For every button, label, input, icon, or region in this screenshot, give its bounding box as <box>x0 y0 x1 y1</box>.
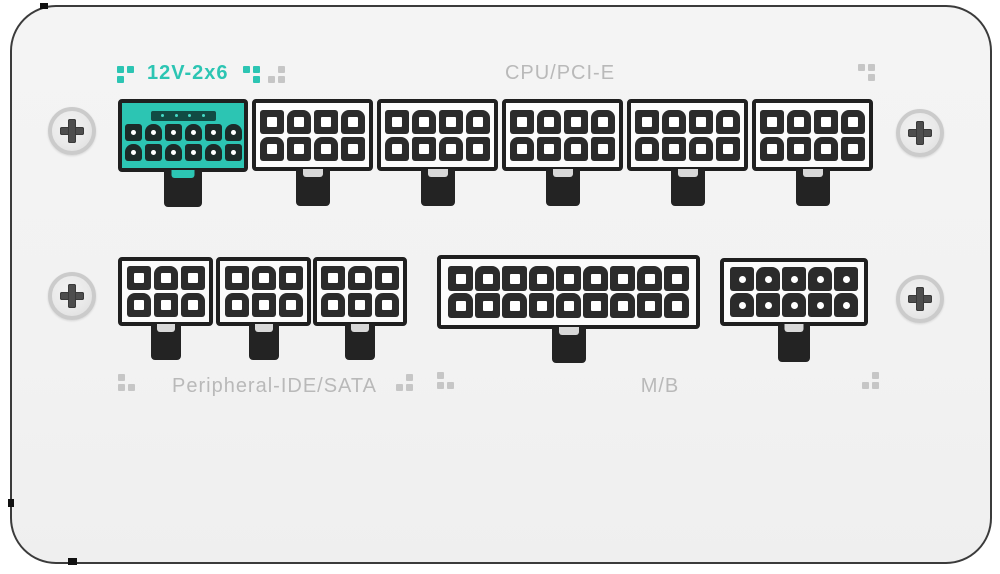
pin-hole <box>517 117 527 127</box>
clip-tab-notch <box>157 324 175 332</box>
pin-hole <box>517 144 527 154</box>
motif-square <box>128 384 135 391</box>
pin-socket <box>348 266 372 290</box>
pin-socket <box>637 293 662 318</box>
pin-socket <box>466 110 490 134</box>
pin-socket <box>502 293 527 318</box>
pin-grid <box>260 110 365 161</box>
pin-socket <box>662 137 686 161</box>
pin-socket <box>127 266 151 290</box>
clip-tab-notch <box>351 324 369 332</box>
pin-hole <box>483 274 493 284</box>
connector-clip-tab <box>671 169 705 206</box>
pin-hole <box>131 130 136 135</box>
pin-socket <box>537 137 561 161</box>
motif-square <box>268 76 275 83</box>
pin-socket <box>610 266 635 291</box>
pin-socket <box>127 293 151 317</box>
pin-socket <box>412 137 436 161</box>
motif-square <box>278 66 285 73</box>
pin-socket <box>591 110 615 134</box>
pin-hole <box>473 117 483 127</box>
pin-socket <box>475 266 500 291</box>
pin-hole <box>767 144 777 154</box>
pin-socket <box>756 267 780 291</box>
decorative-dot-motif <box>858 64 875 81</box>
phillips-cross-vertical <box>68 119 76 143</box>
phillips-cross-vertical <box>68 284 76 308</box>
pin-socket <box>664 266 689 291</box>
connector-housing <box>720 258 868 326</box>
pin-hole <box>794 117 804 127</box>
pin-hole <box>211 150 216 155</box>
pin-socket <box>510 110 534 134</box>
pin-socket <box>716 110 740 134</box>
pin-socket <box>782 293 806 317</box>
clip-tab-notch <box>803 169 823 177</box>
motif-square <box>406 374 413 381</box>
connector-housing <box>118 99 248 172</box>
pin-socket <box>185 124 202 141</box>
pin-hole <box>171 150 176 155</box>
pin-hole <box>848 117 858 127</box>
connector-clip-tab <box>421 169 455 206</box>
motif-square <box>118 374 125 381</box>
pin-hole <box>672 301 682 311</box>
pin-socket <box>689 110 713 134</box>
pin-socket <box>834 267 858 291</box>
pin-socket <box>225 266 249 290</box>
pin-socket <box>225 144 242 161</box>
pin-hole <box>571 144 581 154</box>
pin-socket <box>314 110 338 134</box>
pin-socket <box>205 144 222 161</box>
pin-socket <box>787 110 811 134</box>
pin-socket <box>279 293 303 317</box>
connector-cpu-pcie-1 <box>252 99 373 208</box>
pin-hole <box>591 274 601 284</box>
pin-hole <box>618 301 628 311</box>
pin-hole <box>231 150 236 155</box>
decorative-dot-motif <box>862 372 879 389</box>
pin-hole <box>821 144 831 154</box>
motif-square <box>396 384 403 391</box>
pin-hole <box>739 276 746 283</box>
pin-hole <box>817 302 824 309</box>
clip-tab-notch <box>559 327 579 335</box>
pin-hole <box>723 117 733 127</box>
pin-socket <box>448 293 473 318</box>
pin-hole <box>191 130 196 135</box>
clip-tab-notch <box>553 169 573 177</box>
connector-clip-tab <box>249 324 279 360</box>
pin-socket <box>510 137 534 161</box>
pin-socket <box>448 266 473 291</box>
pin-socket <box>475 293 500 318</box>
pin-hole <box>696 144 706 154</box>
pin-hole <box>642 144 652 154</box>
pin-hole <box>392 117 402 127</box>
connector-clip-tab <box>546 169 580 206</box>
pin-socket <box>125 144 142 161</box>
pin-grid <box>448 266 689 318</box>
pin-grid <box>635 110 740 161</box>
panel-edge-notch <box>40 3 48 9</box>
pin-socket <box>205 124 222 141</box>
pin-hole <box>328 300 338 310</box>
connector-housing <box>252 99 373 171</box>
pin-socket <box>814 137 838 161</box>
pin-socket <box>154 293 178 317</box>
connector-clip-tab <box>552 327 586 363</box>
pin-hole <box>843 302 850 309</box>
pin-socket <box>181 293 205 317</box>
pin-socket <box>375 266 399 290</box>
label-mb: M/B <box>620 375 700 398</box>
sense-pin <box>175 114 178 117</box>
pin-socket <box>439 137 463 161</box>
clip-tab-notch <box>678 169 698 177</box>
pin-hole <box>171 130 176 135</box>
pin-socket <box>662 110 686 134</box>
pin-hole <box>328 273 338 283</box>
connector-housing <box>118 257 213 326</box>
phillips-cross-vertical <box>916 287 924 311</box>
sense-pin-bar <box>151 111 216 121</box>
connector-housing <box>313 257 407 326</box>
pin-socket <box>808 267 832 291</box>
pin-hole <box>473 144 483 154</box>
pin-socket <box>321 293 345 317</box>
motif-square <box>437 372 444 379</box>
pin-hole <box>382 300 392 310</box>
pin-socket <box>583 293 608 318</box>
pin-socket <box>321 266 345 290</box>
pin-socket <box>314 137 338 161</box>
pin-hole <box>510 274 520 284</box>
pin-socket <box>564 137 588 161</box>
pin-hole <box>483 301 493 311</box>
pin-hole <box>259 300 269 310</box>
pin-socket <box>375 293 399 317</box>
pin-socket <box>165 144 182 161</box>
motif-square <box>872 372 879 379</box>
pin-hole <box>618 274 628 284</box>
motif-square <box>862 382 869 389</box>
pin-socket <box>145 144 162 161</box>
pin-socket <box>466 137 490 161</box>
pin-socket <box>787 137 811 161</box>
pin-socket <box>841 110 865 134</box>
screw-top-left <box>48 107 96 155</box>
motif-square <box>253 76 260 83</box>
pin-socket <box>556 293 581 318</box>
pin-hole <box>591 301 601 311</box>
pin-grid <box>125 124 242 161</box>
pin-hole <box>456 301 466 311</box>
pin-socket <box>529 266 554 291</box>
panel-edge-notch <box>8 499 14 507</box>
pin-hole <box>131 150 136 155</box>
pin-socket <box>537 110 561 134</box>
pin-socket <box>225 293 249 317</box>
connector-peripheral-1 <box>118 257 213 362</box>
decorative-dot-motif <box>268 66 285 83</box>
pin-hole <box>544 117 554 127</box>
connector-clip-tab <box>345 324 375 360</box>
motif-square <box>868 64 875 71</box>
pin-hole <box>564 274 574 284</box>
motif-square <box>253 66 260 73</box>
sense-pin <box>188 114 191 117</box>
pin-socket <box>730 293 754 317</box>
pin-hole <box>598 144 608 154</box>
pin-hole <box>446 144 456 154</box>
pin-socket <box>252 293 276 317</box>
pin-hole <box>211 130 216 135</box>
motif-square <box>406 384 413 391</box>
pin-socket <box>689 137 713 161</box>
pin-hole <box>355 273 365 283</box>
pin-socket <box>610 293 635 318</box>
pin-hole <box>642 117 652 127</box>
connector-housing <box>377 99 498 171</box>
pin-socket <box>760 137 784 161</box>
pin-socket <box>556 266 581 291</box>
phillips-cross-vertical <box>916 121 924 145</box>
motif-square <box>278 76 285 83</box>
pin-hole <box>151 150 156 155</box>
pin-hole <box>843 276 850 283</box>
pin-socket <box>808 293 832 317</box>
pin-hole <box>446 117 456 127</box>
pin-hole <box>392 144 402 154</box>
pin-hole <box>645 301 655 311</box>
connector-clip-tab <box>151 324 181 360</box>
pin-hole <box>544 144 554 154</box>
pin-hole <box>267 144 277 154</box>
decorative-dot-motif <box>243 66 260 83</box>
motif-square <box>872 382 879 389</box>
pin-hole <box>794 144 804 154</box>
pin-socket <box>439 110 463 134</box>
clip-tab-notch <box>172 170 195 178</box>
pin-socket <box>225 124 242 141</box>
connector-mb-10pin <box>720 258 868 364</box>
pin-hole <box>765 302 772 309</box>
pin-grid <box>127 266 205 317</box>
pin-socket <box>716 137 740 161</box>
pin-socket <box>185 144 202 161</box>
pin-hole <box>571 117 581 127</box>
pin-hole <box>134 273 144 283</box>
connector-mb-18pin <box>437 255 700 365</box>
pin-hole <box>321 144 331 154</box>
decorative-dot-motif <box>396 374 413 391</box>
pin-socket <box>341 110 365 134</box>
pin-socket <box>165 124 182 141</box>
pin-hole <box>191 150 196 155</box>
pin-hole <box>188 273 198 283</box>
pin-socket <box>591 137 615 161</box>
pin-socket <box>502 266 527 291</box>
pin-hole <box>286 300 296 310</box>
pin-hole <box>696 117 706 127</box>
pin-socket <box>635 110 659 134</box>
pin-socket <box>730 267 754 291</box>
pin-hole <box>791 276 798 283</box>
pin-hole <box>151 130 156 135</box>
motif-square <box>437 382 444 389</box>
pin-grid <box>225 266 303 317</box>
connector-peripheral-3 <box>313 257 407 362</box>
connector-clip-tab <box>296 169 330 206</box>
pin-socket <box>834 293 858 317</box>
screw-top-right <box>896 109 944 157</box>
pin-hole <box>321 117 331 127</box>
connector-housing <box>216 257 311 326</box>
pin-socket <box>287 110 311 134</box>
pin-hole <box>382 273 392 283</box>
pin-hole <box>791 302 798 309</box>
pin-hole <box>672 274 682 284</box>
connector-housing <box>437 255 700 329</box>
pin-hole <box>161 273 171 283</box>
pin-socket <box>260 110 284 134</box>
pin-hole <box>231 130 236 135</box>
pin-socket <box>181 266 205 290</box>
pin-hole <box>537 274 547 284</box>
screw-bottom-right <box>896 275 944 323</box>
pin-hole <box>739 302 746 309</box>
connector-housing <box>752 99 873 171</box>
pin-socket <box>664 293 689 318</box>
pin-socket <box>287 137 311 161</box>
pin-hole <box>669 144 679 154</box>
pin-hole <box>161 300 171 310</box>
pin-socket <box>125 124 142 141</box>
motif-square <box>858 64 865 71</box>
connector-housing <box>502 99 623 171</box>
pin-socket <box>760 110 784 134</box>
pin-socket <box>260 137 284 161</box>
pin-grid <box>510 110 615 161</box>
pin-hole <box>259 273 269 283</box>
decorative-dot-motif <box>118 374 135 391</box>
clip-tab-notch <box>255 324 273 332</box>
pin-socket <box>385 137 409 161</box>
clip-tab-notch <box>785 324 804 332</box>
connector-12v-2x6 <box>118 99 248 209</box>
pin-socket <box>529 293 554 318</box>
pin-grid <box>385 110 490 161</box>
pin-hole <box>848 144 858 154</box>
pin-hole <box>817 276 824 283</box>
connector-housing <box>627 99 748 171</box>
pin-hole <box>765 276 772 283</box>
motif-square <box>243 66 250 73</box>
pin-hole <box>348 117 358 127</box>
pin-hole <box>510 301 520 311</box>
motif-square <box>447 382 454 389</box>
pin-socket <box>635 137 659 161</box>
pin-socket <box>252 266 276 290</box>
motif-square <box>117 66 124 73</box>
sense-pin <box>161 114 164 117</box>
pin-hole <box>767 117 777 127</box>
decorative-dot-motif <box>437 372 454 389</box>
pin-socket <box>385 110 409 134</box>
pin-hole <box>564 301 574 311</box>
pin-socket <box>145 124 162 141</box>
pin-socket <box>341 137 365 161</box>
pin-socket <box>154 266 178 290</box>
connector-clip-tab <box>164 170 202 207</box>
motif-square <box>118 384 125 391</box>
connector-peripheral-2 <box>216 257 311 362</box>
pin-hole <box>598 117 608 127</box>
pin-socket <box>782 267 806 291</box>
pin-grid <box>321 266 399 317</box>
connector-clip-tab <box>796 169 830 206</box>
pin-hole <box>355 300 365 310</box>
clip-tab-notch <box>428 169 448 177</box>
pin-hole <box>188 300 198 310</box>
pin-socket <box>348 293 372 317</box>
pin-hole <box>821 117 831 127</box>
screw-bottom-left <box>48 272 96 320</box>
psu-rear-panel-image: 12V-2x6 CPU/PCI-E Peripheral-IDE/SATA M/… <box>0 0 1000 574</box>
pin-hole <box>294 117 304 127</box>
pin-socket <box>564 110 588 134</box>
connector-cpu-pcie-2 <box>377 99 498 208</box>
motif-square <box>117 76 124 83</box>
clip-tab-notch <box>303 169 323 177</box>
pin-socket <box>841 137 865 161</box>
pin-socket <box>756 293 780 317</box>
pin-hole <box>232 300 242 310</box>
pin-hole <box>419 144 429 154</box>
pin-hole <box>419 117 429 127</box>
pin-socket <box>279 266 303 290</box>
pin-hole <box>723 144 733 154</box>
motif-square <box>868 74 875 81</box>
pin-grid <box>760 110 865 161</box>
pin-hole <box>669 117 679 127</box>
pin-hole <box>348 144 358 154</box>
connector-cpu-pcie-3 <box>502 99 623 208</box>
pin-hole <box>294 144 304 154</box>
connector-clip-tab <box>778 324 810 362</box>
pin-grid <box>730 267 858 317</box>
panel-edge-notch <box>68 558 77 565</box>
motif-square <box>127 66 134 73</box>
pin-socket <box>583 266 608 291</box>
pin-hole <box>645 274 655 284</box>
pin-hole <box>286 273 296 283</box>
pin-socket <box>814 110 838 134</box>
pin-hole <box>456 274 466 284</box>
connector-cpu-pcie-4 <box>627 99 748 208</box>
sense-pin <box>202 114 205 117</box>
connector-cpu-pcie-5 <box>752 99 873 208</box>
label-12v-2x6: 12V-2x6 <box>147 62 229 85</box>
pin-socket <box>637 266 662 291</box>
pin-hole <box>537 301 547 311</box>
pin-hole <box>232 273 242 283</box>
decorative-dot-motif <box>117 66 134 83</box>
label-cpu-pcie: CPU/PCI-E <box>490 62 630 85</box>
